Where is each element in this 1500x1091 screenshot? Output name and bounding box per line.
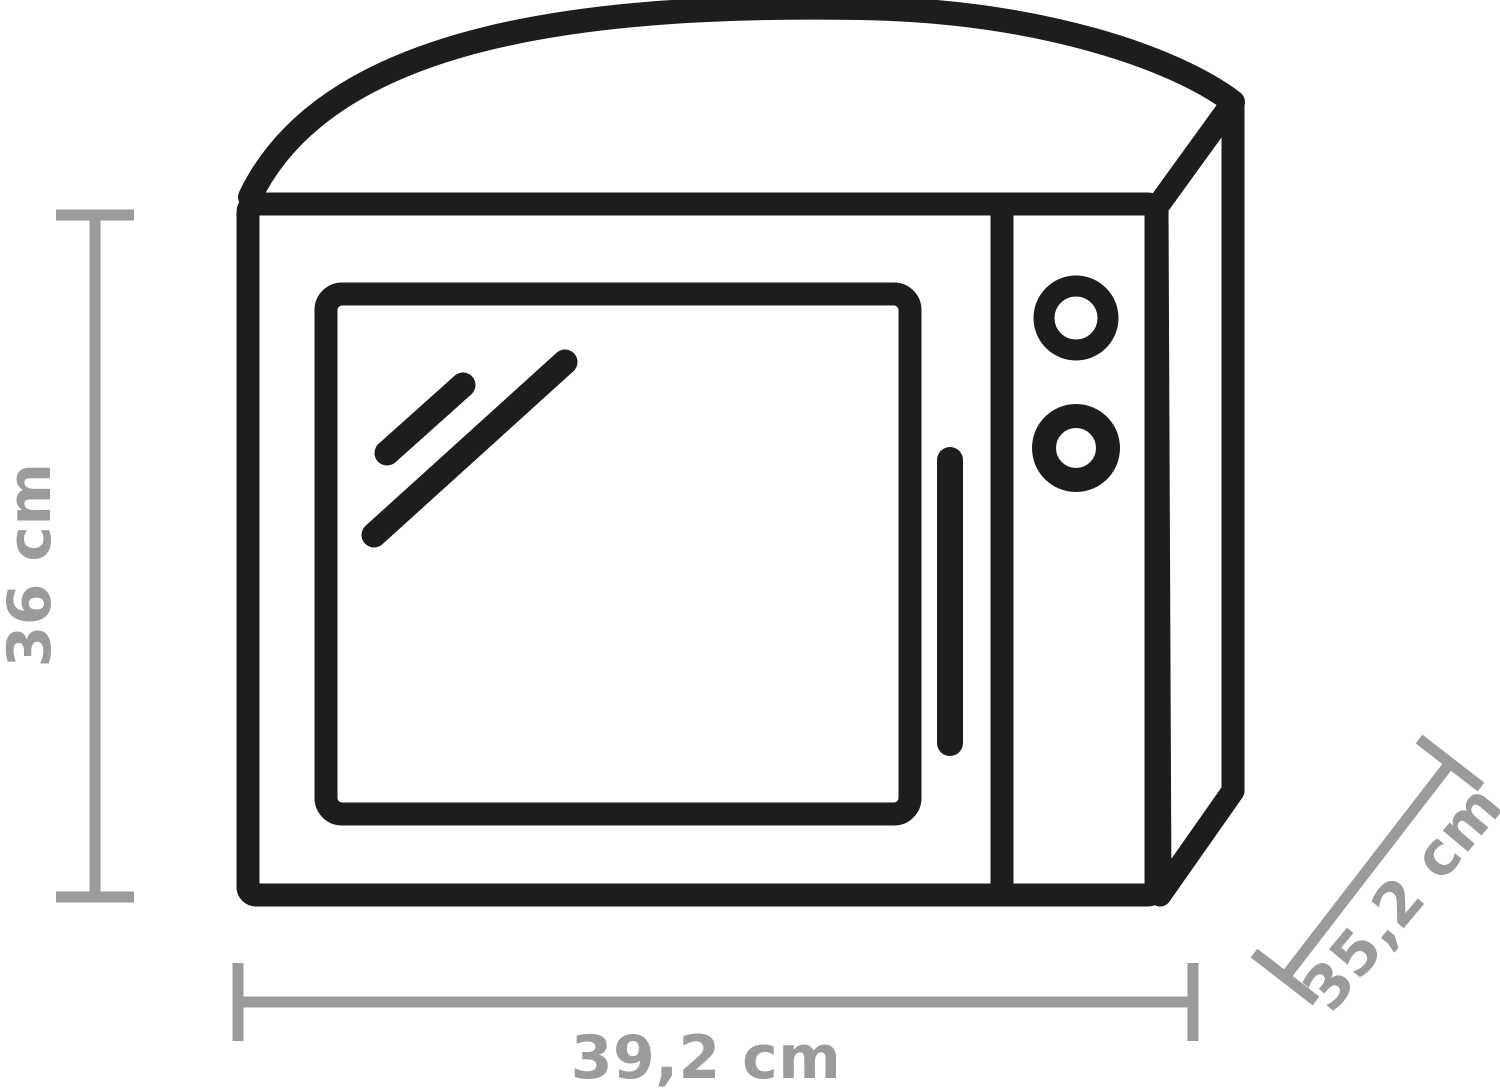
- door-window-frame: [326, 294, 910, 814]
- height-dimension-label: 36 cm: [0, 463, 60, 668]
- microwave-outline-icon: [0, 0, 1500, 1091]
- height-dimension-line: [56, 215, 134, 897]
- width-dimension-label: 39,2 cm: [571, 1028, 842, 1088]
- microwave-top-arc: [250, 8, 1233, 197]
- microwave-body: [248, 8, 1233, 895]
- microwave-side-panel: [1157, 102, 1233, 895]
- dimension-diagram: 36 cm 39,2 cm 35,2 cm: [0, 0, 1500, 1091]
